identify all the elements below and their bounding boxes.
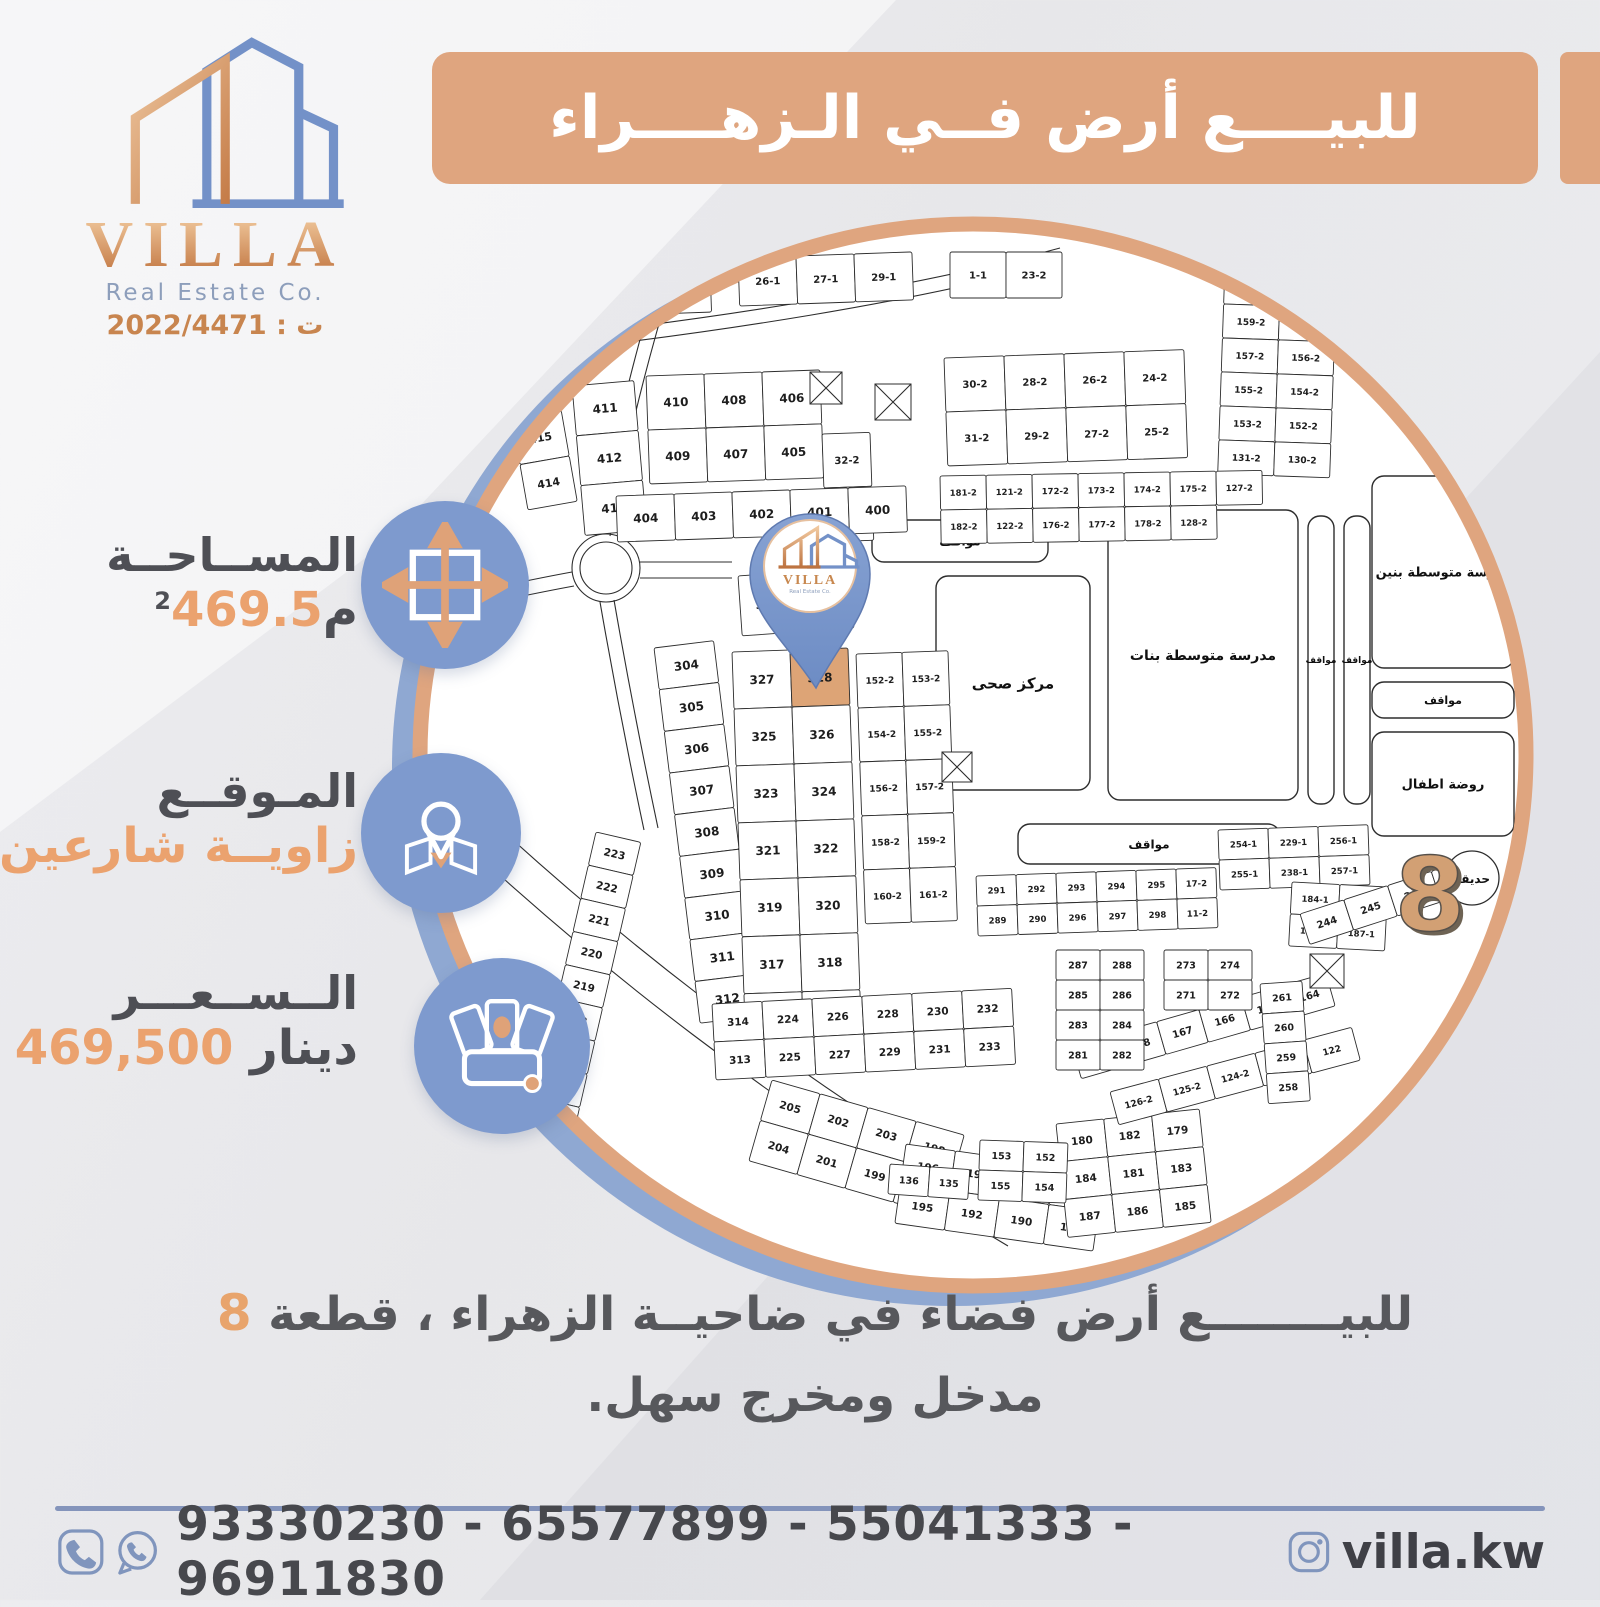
plot-number: 153-2 bbox=[911, 674, 940, 685]
plot-number: 163-2 bbox=[1239, 250, 1268, 261]
plot-number: 122-2 bbox=[996, 522, 1023, 532]
logo-buildings-icon bbox=[75, 18, 355, 208]
title-banner-strip bbox=[1560, 52, 1600, 184]
plot-number: 17-2 bbox=[1186, 879, 1208, 890]
plot-number: 29-1 bbox=[871, 272, 896, 284]
plot-number: 175-2 bbox=[1180, 484, 1207, 494]
price-icon-circle bbox=[414, 958, 590, 1134]
plot-number: 182 bbox=[1118, 1129, 1141, 1143]
plot-number: 327 bbox=[749, 672, 775, 687]
logo-name: VILLA bbox=[40, 212, 390, 278]
plot-number: 157-2 bbox=[915, 782, 944, 793]
plot-number: 319 bbox=[757, 900, 783, 915]
description-line1: للبيــــــــع أرض فضاء في ضاحيــة الزهرا… bbox=[190, 1284, 1440, 1342]
plot-number: 184-1 bbox=[1301, 895, 1329, 906]
plot-number: 410 bbox=[663, 395, 689, 410]
plot-grid-g400s: 410408406409407405 bbox=[646, 370, 824, 484]
plot-number: 174-2 bbox=[1134, 485, 1161, 495]
plot-number: 127-2 bbox=[1226, 484, 1253, 494]
area-unit: م bbox=[323, 582, 358, 638]
plot-number: 298 bbox=[1148, 910, 1166, 921]
map-area-girls: مدرسة متوسطة بنات bbox=[1108, 510, 1298, 800]
plot-number: 152-2 bbox=[865, 676, 894, 687]
company-logo: VILLA Real Estate Co. ت : 2022/4471 bbox=[40, 18, 390, 341]
plot-number: 19-1 bbox=[614, 287, 639, 299]
plot-grid-g400row: 404403402401400 bbox=[616, 486, 907, 542]
plot-number: 232 bbox=[976, 1003, 999, 1016]
area-value: 2م469.5 bbox=[106, 582, 358, 638]
plot-number: 274 bbox=[1220, 960, 1240, 971]
map-area-label: مواقف bbox=[1424, 694, 1462, 707]
plot-number: 286 bbox=[1112, 990, 1132, 1001]
plot-number: 136 bbox=[899, 1175, 920, 1187]
plot-number: 233 bbox=[978, 1041, 1001, 1054]
plot-number: 255-1 bbox=[1231, 870, 1259, 881]
plot-number: 326 bbox=[809, 727, 835, 742]
map-area-pv1: مواقف bbox=[1306, 516, 1337, 804]
plot-grid-pinBlock: 3273283253263233243213223193203173183153… bbox=[732, 648, 862, 1051]
plot-number: 159-2 bbox=[917, 836, 946, 847]
plot-number: 402 bbox=[749, 507, 775, 522]
plot-number: 320 bbox=[815, 898, 841, 913]
plot-number: 272 bbox=[1220, 990, 1240, 1001]
plot-number: 283 bbox=[1068, 1020, 1088, 1031]
plot-number: 28-2 bbox=[1022, 377, 1047, 389]
plot-number: 321 bbox=[755, 843, 781, 858]
plot-number: 130-2 bbox=[1288, 456, 1317, 467]
plot-number: 173-2 bbox=[1088, 486, 1115, 496]
plot-number: 27-2 bbox=[1084, 429, 1109, 441]
plot-number: 25-2 bbox=[1144, 427, 1169, 439]
plot-number: 325 bbox=[751, 729, 777, 744]
location-icon-circle bbox=[361, 753, 521, 913]
district-number: 8 8 bbox=[1395, 836, 1470, 959]
plot-number: 409 bbox=[665, 449, 691, 464]
plot-number: 282 bbox=[1112, 1050, 1132, 1061]
price-value: دينار 469,500 bbox=[15, 1020, 358, 1076]
plot-number: 227 bbox=[829, 1049, 852, 1062]
plot-number: 154 bbox=[1034, 1182, 1055, 1194]
area-number: 469.5 bbox=[171, 582, 323, 638]
logo-license: ت : 2022/4471 bbox=[40, 310, 390, 341]
plot-number: 181-2 bbox=[950, 488, 977, 498]
plot-number: 184 bbox=[1074, 1172, 1097, 1186]
plot-number: 313 bbox=[729, 1054, 752, 1067]
footer-instagram-handle[interactable]: villa.kw bbox=[1342, 1525, 1545, 1580]
info-price: الــســعـــر دينار 469,500 bbox=[15, 966, 358, 1076]
plot-number: 154-2 bbox=[867, 730, 896, 741]
map-area-label: مواقف bbox=[1306, 656, 1337, 666]
plot-number: 224 bbox=[777, 1013, 800, 1026]
description-line1-text: للبيــــــــع أرض فضاء في ضاحيــة الزهرا… bbox=[268, 1287, 1413, 1342]
plot-number: 400 bbox=[865, 503, 891, 518]
plot-cell bbox=[1281, 238, 1338, 274]
plot-number: 318 bbox=[817, 955, 843, 970]
map-area-label: مواقف bbox=[1342, 656, 1373, 666]
plot-number: 291 bbox=[988, 886, 1006, 897]
plot-number: 324 bbox=[811, 784, 837, 799]
plot-number: 238-1 bbox=[1281, 868, 1309, 879]
plot-number: 155-2 bbox=[913, 728, 942, 739]
plot-number: 406 bbox=[779, 391, 805, 406]
plot-number: 30-2 bbox=[962, 379, 987, 391]
plot-grid-topright: 163-2162-2161-2160-2159-2158-2157-2156-2… bbox=[1218, 236, 1338, 478]
plot-number: 157-2 bbox=[1235, 352, 1264, 363]
plot-number: 287 bbox=[1068, 960, 1088, 971]
plot-grid-g174strip: 181-2121-2172-2173-2174-2175-2127-2182-2… bbox=[940, 470, 1263, 544]
plot-number: 261 bbox=[1272, 992, 1293, 1004]
plot-number: 407 bbox=[723, 447, 749, 462]
location-text: زاويــة شارعين bbox=[0, 818, 358, 874]
plot-number: 322 bbox=[813, 841, 839, 856]
map-area-label: روضة اطفال bbox=[1402, 778, 1485, 793]
plot-number: 158-2 bbox=[871, 838, 900, 849]
pin-brand: VILLA bbox=[783, 573, 837, 588]
plot-grid-g136: 136135 bbox=[888, 1164, 970, 1200]
plot-number: 153 bbox=[991, 1151, 1011, 1163]
plot-grid-col261: 261260259258 bbox=[1260, 981, 1310, 1104]
map-pin-icon bbox=[382, 774, 500, 892]
price-number: 469,500 bbox=[15, 1020, 234, 1076]
plot-number: 284 bbox=[1112, 1020, 1132, 1031]
plot-number: 289 bbox=[989, 916, 1007, 927]
map-area-label: مواقف bbox=[1128, 837, 1169, 852]
plot-cell bbox=[1225, 236, 1282, 272]
plot-number: 32-2 bbox=[834, 455, 859, 467]
plot-grid-g254: 254-1229-1256-1255-1238-1257-1 bbox=[1218, 825, 1370, 890]
plot-number: 411 bbox=[592, 400, 618, 416]
plot-number: 225 bbox=[779, 1051, 802, 1064]
plot-number: 290 bbox=[1029, 915, 1047, 926]
map-area-kg: روضة اطفال bbox=[1372, 732, 1514, 836]
plot-number: 412 bbox=[596, 450, 622, 466]
plot-number: 231 bbox=[928, 1043, 951, 1056]
plot-number: 178-2 bbox=[1134, 519, 1161, 529]
description: للبيــــــــع أرض فضاء في ضاحيــة الزهرا… bbox=[190, 1284, 1440, 1423]
plot-number: 185 bbox=[1174, 1200, 1197, 1214]
plot-number: 160-2 bbox=[873, 892, 902, 903]
map-area-parkB: مواقف bbox=[1372, 682, 1514, 718]
plot-number: 257-1 bbox=[1331, 866, 1359, 877]
plot-number: 160-2 bbox=[1294, 286, 1323, 297]
plot-number: 405 bbox=[781, 445, 807, 460]
info-location: المـوقــع زاويــة شارعين bbox=[0, 764, 358, 874]
plot-number: 292 bbox=[1027, 885, 1045, 896]
plot-number: 180 bbox=[1070, 1134, 1093, 1148]
plot-number: 159-2 bbox=[1236, 318, 1265, 329]
footer-contact-bar: 93330230 - 65577899 - 55041333 - 9691183… bbox=[55, 1520, 1545, 1584]
plot-number: 297 bbox=[1108, 912, 1126, 923]
plot-number: 152-2 bbox=[1289, 422, 1318, 433]
plot-number: 31-2 bbox=[964, 433, 989, 445]
plot-number: 296 bbox=[1069, 913, 1087, 924]
plot-number: 416 bbox=[520, 384, 545, 401]
plot-number: 156-2 bbox=[869, 784, 898, 795]
plot-number: 214 bbox=[534, 1144, 558, 1161]
area-label: المســاحــة bbox=[106, 528, 358, 582]
instagram-icon bbox=[1284, 1524, 1334, 1580]
plot-number: 161-2 bbox=[919, 890, 948, 901]
footer-phone-numbers[interactable]: 93330230 - 65577899 - 55041333 - 9691183… bbox=[176, 1497, 1284, 1607]
svg-text:8: 8 bbox=[1395, 836, 1466, 955]
description-line2: مدخل ومخرج سهل. bbox=[190, 1368, 1440, 1423]
plot-number: 281 bbox=[1068, 1050, 1088, 1061]
plot-number: 288 bbox=[1112, 960, 1132, 971]
plot-number: 162-2 bbox=[1295, 252, 1324, 263]
price-unit: دينار bbox=[250, 1020, 358, 1076]
plot-number: 154-2 bbox=[1290, 388, 1319, 399]
plot-number: 258 bbox=[1278, 1082, 1299, 1094]
plot-number: 230 bbox=[926, 1005, 949, 1018]
area-icon-circle bbox=[361, 501, 529, 669]
plot-number: 131-2 bbox=[1232, 454, 1261, 465]
plot-number: 295 bbox=[1147, 880, 1165, 891]
plot-number: 314 bbox=[727, 1016, 750, 1029]
info-area: المســاحــة 2م469.5 bbox=[106, 528, 358, 638]
plot-number: 177-2 bbox=[1088, 520, 1115, 530]
plot-number: 285 bbox=[1068, 990, 1088, 1001]
plot-cell bbox=[1280, 272, 1337, 308]
logo-subtitle: Real Estate Co. bbox=[40, 280, 390, 306]
phone-icon bbox=[55, 1523, 107, 1581]
plot-number: 155-2 bbox=[1234, 386, 1263, 397]
plot-number: 226 bbox=[827, 1011, 850, 1024]
map-area-pv2: مواقف bbox=[1342, 516, 1373, 804]
location-value: زاويــة شارعين bbox=[0, 818, 358, 874]
area-sup: 2 bbox=[154, 587, 171, 615]
plot-number: 27-1 bbox=[813, 274, 838, 286]
plot-number: 26-2 bbox=[1082, 375, 1107, 387]
plot-number: 23-2 bbox=[1021, 271, 1046, 282]
plot-number: 1-1 bbox=[969, 271, 987, 282]
plot-number: 179 bbox=[1166, 1124, 1189, 1138]
flyer-canvas: { "logo": {"name": "VILLA", "subtitle": … bbox=[0, 0, 1600, 1600]
whatsapp-icon bbox=[111, 1523, 163, 1581]
plot-number: 176-2 bbox=[1042, 521, 1069, 531]
plot-number: 260 bbox=[1274, 1022, 1295, 1034]
plot-number: 135 bbox=[938, 1178, 959, 1190]
plot-number: 181 bbox=[1122, 1167, 1145, 1181]
plot-number: 26-1 bbox=[755, 276, 780, 288]
plot-grid-stripRight: 152-2153-2154-2155-2156-2157-2158-2159-2… bbox=[856, 651, 957, 924]
plot-number: 273 bbox=[1176, 960, 1196, 971]
map-area-label: مدرسة متوسطة بنات bbox=[1130, 648, 1276, 664]
plot-grid-fan3: 180182179184181183187186185 bbox=[1056, 1109, 1211, 1237]
plot-number: 155 bbox=[990, 1181, 1010, 1193]
plot-number: 11-2 bbox=[1187, 909, 1209, 920]
plot-grid-topsmall3: 1-123-2 bbox=[950, 252, 1062, 298]
plot-number: 259 bbox=[1276, 1052, 1297, 1064]
expand-arrows-icon bbox=[382, 522, 508, 648]
plot-number: 172-2 bbox=[1042, 487, 1069, 497]
plot-number: 183 bbox=[1170, 1162, 1193, 1176]
plot-number: 128-2 bbox=[1180, 518, 1207, 528]
map-area-label: مركز صحى bbox=[972, 674, 1054, 692]
plot-number: 187 bbox=[1078, 1210, 1101, 1224]
plot-number: 403 bbox=[691, 509, 717, 524]
cadastral-map: مواقفمركز صحىمدرسة متوسطة بناتمواقفمواقف… bbox=[420, 224, 1526, 1286]
plot-number: 317 bbox=[759, 957, 785, 972]
plot-number: 293 bbox=[1067, 883, 1085, 894]
plot-number: 182-2 bbox=[950, 522, 977, 532]
plot-number: 229-1 bbox=[1280, 838, 1308, 849]
plot-number: 29-2 bbox=[1024, 431, 1049, 443]
page-title: للبيــــع أرض فــي الـزهــــراء bbox=[549, 83, 1421, 153]
plot-cell bbox=[598, 268, 656, 316]
title-banner: للبيــــع أرض فــي الـزهــــراء bbox=[432, 52, 1538, 184]
location-label: المـوقــع bbox=[0, 764, 358, 818]
map-canvas: مواقفمركز صحىمدرسة متوسطة بناتمواقفمواقف… bbox=[420, 224, 1526, 1286]
description-plot-number: 8 bbox=[217, 1284, 252, 1342]
price-label: الــســعـــر bbox=[15, 966, 358, 1020]
plot-number: 294 bbox=[1107, 882, 1125, 893]
plot-number: 404 bbox=[633, 511, 659, 526]
plot-number: 186 bbox=[1126, 1205, 1149, 1219]
plot-number: 24-2 bbox=[1142, 373, 1167, 385]
plot-number: 156-2 bbox=[1291, 354, 1320, 365]
plot-number: 256-1 bbox=[1330, 836, 1358, 847]
pin-brand-sub: Real Estate Co. bbox=[789, 589, 831, 595]
plot-number: 228 bbox=[877, 1008, 900, 1021]
plot-number: 254-1 bbox=[1230, 840, 1258, 851]
plot-number: 121-2 bbox=[996, 488, 1023, 498]
plot-number: 323 bbox=[753, 786, 779, 801]
money-icon bbox=[437, 981, 567, 1111]
plot-number: 153-2 bbox=[1233, 420, 1262, 431]
plot-number: 271 bbox=[1176, 990, 1196, 1001]
plot-number: 229 bbox=[879, 1046, 902, 1059]
plot-number: 408 bbox=[721, 393, 747, 408]
plot-number: 152 bbox=[1035, 1152, 1055, 1164]
